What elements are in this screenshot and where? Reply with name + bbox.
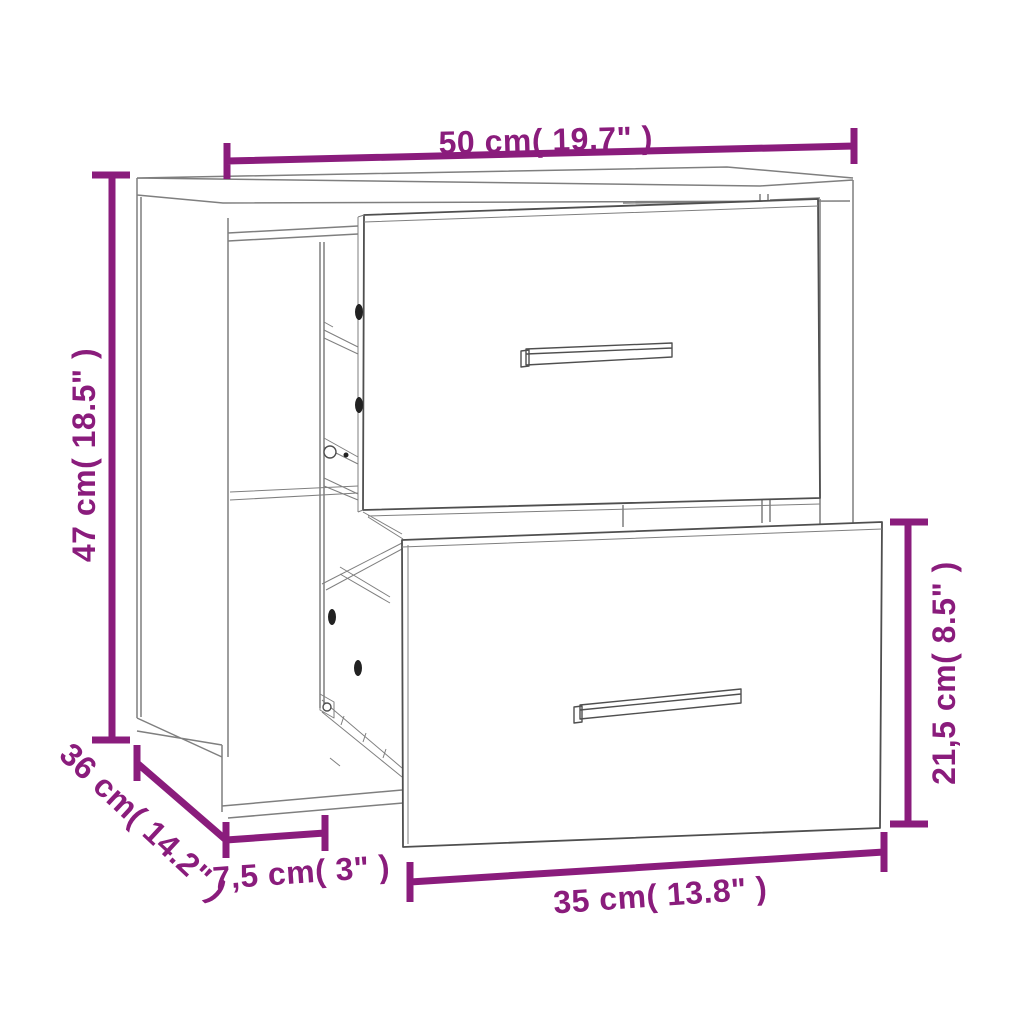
dimension-drawer-height-line bbox=[890, 522, 928, 824]
dimension-height: 47 cm( 18.5" ) bbox=[66, 175, 130, 740]
lower-drawer-slides bbox=[320, 543, 402, 777]
cabinet-drawing bbox=[137, 167, 882, 847]
dimension-drawer-height: 21,5 cm( 8.5" ) bbox=[890, 522, 962, 824]
dimension-width-label: 50 cm( 19.7" ) bbox=[438, 119, 653, 161]
dimension-side-depth-label: 7,5 cm( 3" ) bbox=[211, 848, 391, 896]
lower-drawer-screw-hole bbox=[354, 660, 362, 676]
upper-slide-pin bbox=[344, 453, 349, 458]
dimension-drawer-width: 35 cm( 13.8" ) bbox=[410, 832, 884, 920]
lower-drawer-screw-hole bbox=[328, 609, 336, 625]
lower-drawer-front bbox=[402, 522, 882, 847]
lower-slide-rails bbox=[320, 543, 402, 777]
dimension-side-depth-line bbox=[226, 815, 325, 851]
dimension-side-depth: 7,5 cm( 3" ) bbox=[211, 815, 391, 896]
dimension-drawer-height-label: 21,5 cm( 8.5" ) bbox=[926, 561, 962, 785]
dimension-diagram: 50 cm( 19.7" ) 47 cm( 18.5" ) 36 cm( 14.… bbox=[0, 0, 1024, 1024]
lower-drawer bbox=[328, 522, 882, 847]
upper-drawer bbox=[355, 199, 820, 539]
upper-drawer-screw-hole bbox=[355, 397, 363, 413]
upper-drawer-screw-hole bbox=[355, 304, 363, 320]
dimension-depth: 36 cm( 14.2" ) bbox=[53, 736, 234, 908]
dimension-height-label: 47 cm( 18.5" ) bbox=[66, 348, 102, 562]
dimension-drawer-width-label: 35 cm( 13.8" ) bbox=[552, 870, 768, 921]
upper-slide-roller bbox=[324, 446, 336, 458]
diagram-canvas: 50 cm( 19.7" ) 47 cm( 18.5" ) 36 cm( 14.… bbox=[0, 0, 1024, 1024]
lower-slide-roller bbox=[323, 703, 331, 711]
upper-slide-rails bbox=[230, 322, 358, 500]
upper-drawer-slides bbox=[230, 322, 358, 500]
